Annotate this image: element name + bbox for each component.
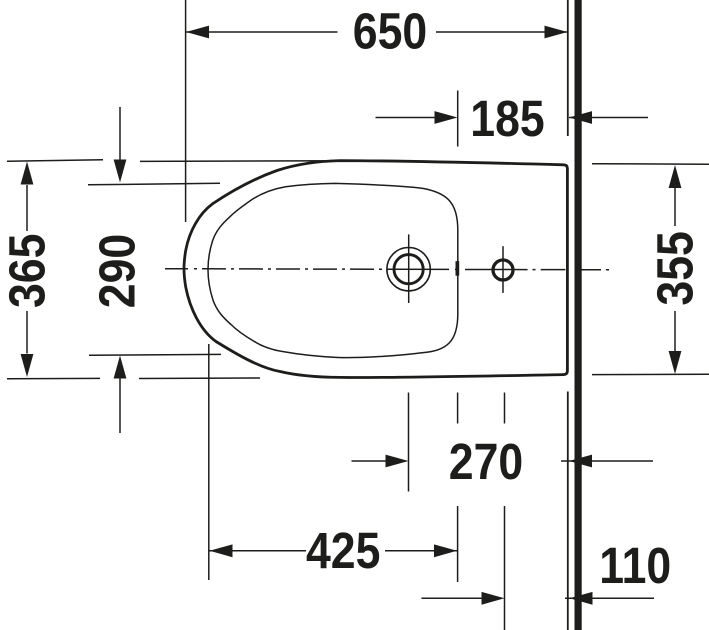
svg-text:355: 355 — [648, 231, 704, 305]
svg-text:365: 365 — [0, 234, 56, 308]
svg-text:650: 650 — [353, 4, 427, 60]
svg-text:290: 290 — [90, 234, 146, 308]
svg-text:425: 425 — [306, 523, 380, 579]
svg-text:110: 110 — [599, 538, 671, 594]
svg-text:185: 185 — [470, 91, 544, 147]
svg-text:270: 270 — [449, 434, 523, 490]
